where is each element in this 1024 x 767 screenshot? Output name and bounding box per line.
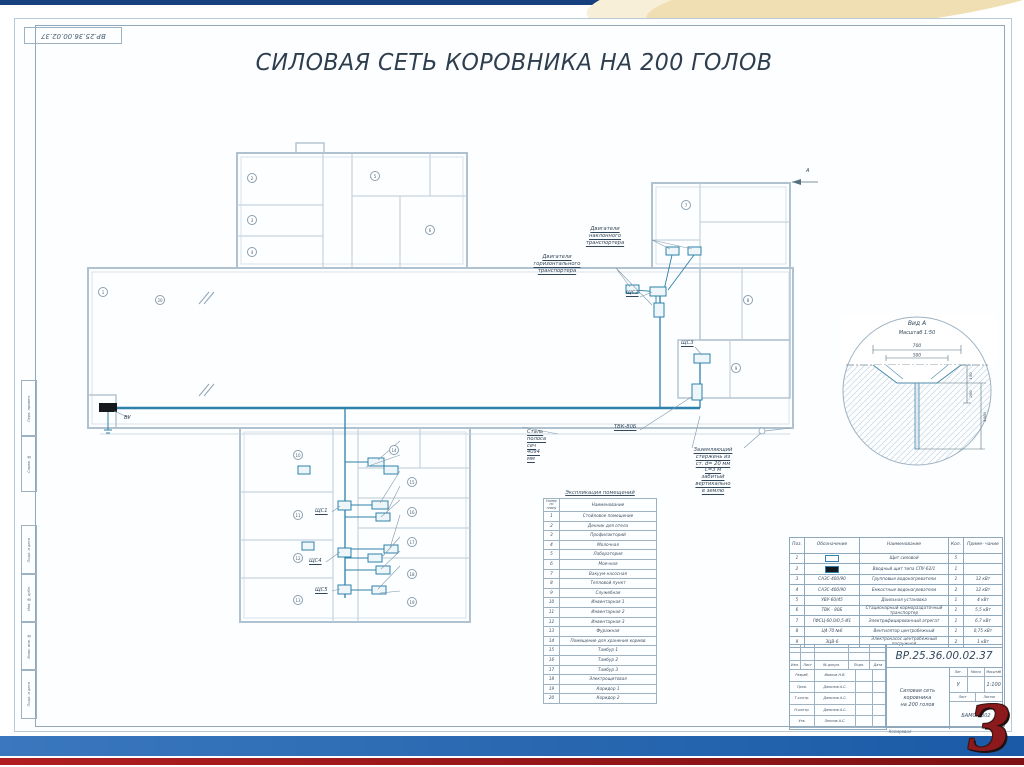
explication-row: 12Инвентарная 3	[544, 617, 657, 627]
explication-row: 13Фуражная	[544, 627, 657, 637]
lit-value: У	[950, 677, 968, 692]
spec-note: 6,7 кВт	[964, 616, 1003, 626]
spec-note: 0,75 кВт	[964, 626, 1003, 636]
room-number-marker: 7	[681, 200, 691, 210]
spec-pos: 2	[790, 564, 805, 574]
tb-cell	[849, 645, 870, 652]
room-number: 20	[544, 694, 560, 704]
room-number: 15	[544, 646, 560, 656]
explication-col-number: Номер по плану	[544, 499, 560, 512]
spec-name: Электрифицированный агрегат	[860, 616, 949, 626]
room-number-marker: 3	[247, 215, 257, 225]
tb-cell	[856, 670, 873, 681]
signature-row: Пров.Данилов А.С.	[790, 682, 886, 694]
tb-cell: Данилов А.С.	[815, 682, 856, 693]
panel-legend-symbol	[825, 555, 839, 562]
tb-cell	[815, 645, 849, 652]
room-number-marker: 10	[293, 450, 303, 460]
frame-cell-podp-data-1: Подп. и дата	[21, 525, 37, 575]
spec-note: 4 кВт	[964, 595, 1003, 605]
room-name: Коридор 1	[560, 684, 657, 694]
spec-code	[805, 564, 860, 574]
room-number: 6	[544, 559, 560, 569]
spec-code: УВУ-60/45	[805, 595, 860, 605]
frame-cell-vzam-inv: Взам. инв. №	[21, 621, 37, 671]
spec-note: 12 кВт	[964, 585, 1003, 595]
tb-cell	[873, 705, 885, 716]
tb-cell: № докум.	[815, 661, 849, 669]
tb-cell: Данилов А.С.	[815, 693, 856, 704]
plan-label-shchs1: ЩС1	[315, 508, 328, 515]
scale-label: Масштаб	[985, 668, 1002, 676]
mass-value	[968, 677, 986, 692]
spec-row: 2Вводный щит типа СПУ-62/11	[790, 564, 1003, 574]
room-name: Инвентарная 2	[560, 607, 657, 617]
spec-qty: 1	[949, 564, 964, 574]
spec-name: Доильная установка	[860, 595, 949, 605]
room-name: Вакуум-насосная	[560, 569, 657, 579]
spec-qty: 1	[949, 574, 964, 584]
room-number: 19	[544, 684, 560, 694]
explication-row: 1Стойловое помещение	[544, 512, 657, 522]
spec-pos: 7	[790, 616, 805, 626]
explication-row: 2Денник для отела	[544, 521, 657, 531]
spec-name: Групповые водонагреватели	[860, 574, 949, 584]
room-number: 4	[544, 540, 560, 550]
spec-col-pos: Поз.	[790, 538, 805, 554]
plan-label-tvk-80b: ТВК-80Б	[614, 424, 636, 431]
spec-note	[964, 554, 1003, 564]
spec-pos: 6	[790, 605, 805, 615]
explication-row: 20Коридор 2	[544, 694, 657, 704]
title-block-doc-number: ВР.25.36.00.02.37	[886, 645, 1002, 668]
explication-row: 15Тамбур 1	[544, 646, 657, 656]
tb-cell: Лист	[801, 661, 815, 669]
room-name: Молочная	[560, 540, 657, 550]
spec-row: 4САЗС-400/90Емкостные водонагреватели212…	[790, 585, 1003, 595]
plan-label-ground-note: Заземляющий стержень из ст. d= 20 мм L=3…	[694, 447, 733, 494]
spec-name: Стационарный кормораздаточный транспорте…	[860, 605, 949, 615]
plan-label-view-arrow: А	[806, 168, 810, 175]
spec-qty: 2	[949, 585, 964, 595]
tb-cell	[790, 653, 801, 660]
spec-pos: 8	[790, 626, 805, 636]
plan-label-shchs2: ЩС2	[626, 290, 639, 297]
spec-qty: 5	[949, 554, 964, 564]
spec-col-note: Приме- чание	[964, 538, 1003, 554]
tb-cell	[870, 653, 886, 660]
spec-row: 6ТВК - 80БСтационарный кормораздаточный …	[790, 605, 1003, 615]
spec-code	[805, 554, 860, 564]
room-number: 3	[544, 531, 560, 541]
tb-cell: Т.контр.	[790, 693, 815, 704]
tb-cell	[856, 682, 873, 693]
room-name: Тепловой пункт	[560, 579, 657, 589]
tb-cell	[790, 645, 801, 652]
spec-row: 7ГФСЦ-60.0/0,5-И1Электрифицированный агр…	[790, 616, 1003, 626]
signature-header-row: Изм.Лист№ докум.Подп.Дата	[790, 661, 886, 670]
tb-cell: Данилов А.С.	[815, 705, 856, 716]
room-number-marker: 15	[407, 477, 417, 487]
room-number-marker: 20	[155, 295, 165, 305]
top-left-doc-stamp: ВР.25.36.00.02.37	[24, 27, 122, 44]
signature-row: Т.контр.Данилов А.С.	[790, 693, 886, 705]
plan-label-shchs5: ЩС5	[315, 587, 328, 594]
room-number-marker: 18	[407, 569, 417, 579]
room-number: 14	[544, 636, 560, 646]
spec-code: ТВК - 80Б	[805, 605, 860, 615]
doc-number-rotated: ВР.25.36.00.02.37	[41, 32, 106, 40]
spec-qty: 1	[949, 605, 964, 615]
spec-row: 3САЗС-400/90Групповые водонагреватели112…	[790, 574, 1003, 584]
spec-name: Вводный щит типа СПУ-62/1	[860, 564, 949, 574]
title-block-signatures: Изм.Лист№ докум.Подп.ДатаРазраб.Иванов Н…	[789, 644, 887, 730]
spec-col-qty: Кол.	[949, 538, 964, 554]
room-number-marker: 4	[247, 247, 257, 257]
signature-row: Утв.Леонов А.С.	[790, 716, 886, 728]
tb-cell	[801, 653, 815, 660]
room-number-marker: 19	[407, 597, 417, 607]
room-number: 1	[544, 512, 560, 522]
explication-row: 17Тамбур 3	[544, 665, 657, 675]
room-name: Денник для отела	[560, 521, 657, 531]
kopiroval-note: Копировал	[855, 729, 945, 734]
plan-label-motor-incline: Двигатели наклонного транспортера	[586, 226, 624, 246]
explication-row: 4Молочная	[544, 540, 657, 550]
drawing-title: СИЛОВАЯ СЕТЬ КОРОВНИКА НА 200 ГОЛОВ	[256, 50, 765, 76]
tb-cell	[856, 705, 873, 716]
tb-cell: Разраб.	[790, 670, 815, 681]
tb-cell: Н.контр.	[790, 705, 815, 716]
slide-page-number: 3	[968, 698, 1011, 760]
room-number-marker: 16	[407, 507, 417, 517]
room-number-marker: 5	[370, 171, 380, 181]
tb-cell: Пров.	[790, 682, 815, 693]
change-row	[790, 653, 886, 661]
tb-cell	[849, 653, 870, 660]
room-name: Фуражная	[560, 627, 657, 637]
explication-row: 10Инвентарная 1	[544, 598, 657, 608]
change-row	[790, 645, 886, 653]
room-explication-table: Экспликация помещений Номер по плану Наи…	[543, 490, 657, 704]
frame-cell-inv-dubl: Инв. № дубл.	[21, 573, 37, 623]
room-number-marker: 8	[743, 295, 753, 305]
signature-row: Н.контр.Данилов А.С.	[790, 705, 886, 717]
explication-row: 7Вакуум-насосная	[544, 569, 657, 579]
room-name: Профилакторий	[560, 531, 657, 541]
spec-note: 12 кВт	[964, 574, 1003, 584]
room-number-marker: 1	[98, 287, 108, 297]
room-number-marker: 12	[293, 553, 303, 563]
plan-label-shchs3: ЩС3	[681, 340, 694, 347]
plan-label-vu-panel: ВУ	[124, 415, 131, 422]
plan-label-motor-horiz: Двигатели горизонтального транспортера	[534, 254, 581, 274]
frame-cell-podp-data-2: Подп. и дата	[21, 669, 37, 719]
tb-cell	[815, 653, 849, 660]
lit-label: Лит.	[950, 668, 968, 676]
spec-row: 8Ц4-70 №6Вентилятор центробежный10,75 кВ…	[790, 626, 1003, 636]
explication-row: 11Инвентарная 2	[544, 607, 657, 617]
tb-cell: Леонов А.С.	[815, 716, 856, 727]
scale-value: 1:100	[985, 677, 1002, 692]
room-number: 17	[544, 665, 560, 675]
tb-cell: Утв.	[790, 716, 815, 727]
tb-cell	[873, 682, 885, 693]
room-name: Лаборатория	[560, 550, 657, 560]
spec-name: Емкостные водонагреватели	[860, 585, 949, 595]
room-number: 11	[544, 607, 560, 617]
tb-cell: Изм.	[790, 661, 801, 669]
room-number-marker: 14	[389, 445, 399, 455]
spec-col-code: Обозначение	[805, 538, 860, 554]
frame-cell-perv-primen: Перв. примен.	[21, 380, 37, 437]
room-number-marker: 9	[731, 363, 741, 373]
room-name: Тамбур 2	[560, 655, 657, 665]
spec-pos: 3	[790, 574, 805, 584]
explication-row: 16Тамбур 2	[544, 655, 657, 665]
tb-cell	[801, 645, 815, 652]
room-name: Коридор 2	[560, 694, 657, 704]
tb-cell	[856, 716, 873, 727]
tb-cell: Дата	[870, 661, 886, 669]
room-number-marker: 17	[407, 537, 417, 547]
bottom-blue-bar	[0, 736, 1024, 756]
input-panel-legend-symbol	[825, 566, 839, 573]
room-name: Стойловое помещение	[560, 512, 657, 522]
room-number: 9	[544, 588, 560, 598]
explication-row: 14Помещение для хранения кормов	[544, 636, 657, 646]
spec-pos: 4	[790, 585, 805, 595]
spec-code: Ц4-70 №6	[805, 626, 860, 636]
tb-cell	[873, 670, 885, 681]
spec-name: Вентилятор центробежный	[860, 626, 949, 636]
room-number: 16	[544, 655, 560, 665]
title-block-doc-title: Силовая сеть коровника на 200 голов	[886, 668, 950, 729]
plan-label-steel-strip: Сталь полоса сеч 40х4 мм	[527, 429, 546, 463]
spec-qty: 1	[949, 595, 964, 605]
specification-table: Поз. Обозначение Наименование Кол. Приме…	[789, 537, 1003, 648]
tb-cell: Подп.	[849, 661, 870, 669]
explication-row: 5Лаборатория	[544, 550, 657, 560]
room-number-marker: 2	[247, 173, 257, 183]
spec-col-name: Наименование	[860, 538, 949, 554]
plan-label-shchs4: ЩС4	[309, 558, 322, 565]
room-number-marker: 11	[293, 510, 303, 520]
explication-row: 8Тепловой пункт	[544, 579, 657, 589]
room-number-marker: 6	[425, 225, 435, 235]
explication-col-name: Наименование	[560, 499, 657, 512]
room-number: 12	[544, 617, 560, 627]
room-name: Моечная	[560, 559, 657, 569]
tb-cell	[856, 693, 873, 704]
tb-cell	[870, 645, 886, 652]
spec-qty: 1	[949, 626, 964, 636]
spec-row: 1Щит силовой5	[790, 554, 1003, 564]
tb-cell	[873, 693, 885, 704]
presentation-slide: ВР.25.36.00.02.37 Перв. примен. Справ. №…	[0, 0, 1024, 767]
room-number: 5	[544, 550, 560, 560]
room-number: 8	[544, 579, 560, 589]
spec-note: 5,5 кВт	[964, 605, 1003, 615]
explication-row: 18Электрощитовая	[544, 675, 657, 685]
spec-pos: 5	[790, 595, 805, 605]
room-name: Помещение для хранения кормов	[560, 636, 657, 646]
spec-code: САЗС-400/90	[805, 574, 860, 584]
tb-cell: Иванов Н.В.	[815, 670, 856, 681]
room-number: 10	[544, 598, 560, 608]
spec-pos: 1	[790, 554, 805, 564]
room-number: 18	[544, 675, 560, 685]
room-number: 13	[544, 627, 560, 637]
room-number: 2	[544, 521, 560, 531]
spec-note	[964, 564, 1003, 574]
spec-code: ГФСЦ-60.0/0,5-И1	[805, 616, 860, 626]
signature-row: Разраб.Иванов Н.В.	[790, 670, 886, 682]
spec-name: Щит силовой	[860, 554, 949, 564]
tb-cell	[873, 716, 885, 727]
spec-qty: 1	[949, 616, 964, 626]
bottom-red-bar	[0, 758, 1024, 765]
room-name: Тамбур 3	[560, 665, 657, 675]
explication-title: Экспликация помещений	[543, 490, 657, 496]
room-name: Тамбур 1	[560, 646, 657, 656]
mass-label: Масса	[968, 668, 986, 676]
explication-row: 19Коридор 1	[544, 684, 657, 694]
spec-code: САЗС-400/90	[805, 585, 860, 595]
spec-row: 5УВУ-60/45Доильная установка14 кВт	[790, 595, 1003, 605]
frame-cell-sprav: Справ. №	[21, 435, 37, 492]
room-name: Электрощитовая	[560, 675, 657, 685]
explication-row: 3Профилакторий	[544, 531, 657, 541]
explication-row: 9Служебная	[544, 588, 657, 598]
room-number-marker: 13	[293, 595, 303, 605]
room-number: 7	[544, 569, 560, 579]
room-name: Инвентарная 3	[560, 617, 657, 627]
explication-row: 6Моечная	[544, 559, 657, 569]
room-name: Инвентарная 1	[560, 598, 657, 608]
room-name: Служебная	[560, 588, 657, 598]
